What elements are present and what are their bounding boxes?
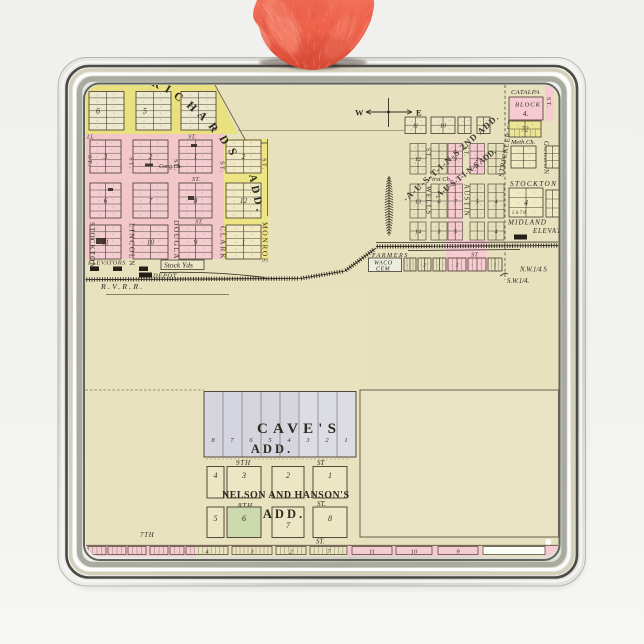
svg-text:ADD.: ADD. [251, 442, 293, 456]
svg-text:12: 12 [415, 156, 422, 163]
svg-text:9TH: 9TH [236, 459, 251, 467]
svg-text:ST.: ST. [86, 155, 93, 167]
svg-text:ELEVATORS: ELEVATORS [87, 260, 126, 267]
svg-text:S.W.1/4.: S.W.1/4. [507, 278, 530, 285]
svg-text:MONROE: MONROE [261, 222, 270, 264]
svg-text:12: 12 [240, 196, 248, 205]
svg-text:AUSTIN: AUSTIN [463, 184, 471, 217]
svg-text:7: 7 [149, 196, 153, 205]
svg-text:E: E [416, 108, 422, 118]
svg-text:CLARK: CLARK [219, 226, 228, 260]
svg-text:7TH: 7TH [140, 532, 155, 539]
svg-text:ST.: ST. [261, 158, 268, 170]
svg-text:ELEVAT: ELEVAT [532, 228, 562, 235]
svg-text:W: W [355, 108, 364, 118]
svg-text:CATALPA: CATALPA [511, 89, 540, 96]
svg-text:ST.: ST. [316, 539, 325, 546]
svg-text:6: 6 [242, 514, 246, 523]
svg-text:3: 3 [103, 152, 108, 161]
svg-text:2: 2 [149, 152, 153, 161]
svg-text:LL: LL [86, 135, 94, 141]
svg-text:10: 10 [440, 123, 447, 130]
svg-text:BLOCK: BLOCK [515, 102, 541, 109]
svg-text:1: 1 [328, 471, 332, 480]
svg-text:2: 2 [286, 471, 290, 480]
svg-text:5: 5 [214, 514, 218, 523]
svg-text:1: 1 [344, 437, 347, 444]
svg-text:10: 10 [147, 238, 155, 247]
svg-text:Meth.Ch.: Meth.Ch. [510, 139, 536, 146]
svg-text:8: 8 [328, 514, 332, 523]
svg-text:WELLS: WELLS [425, 186, 433, 215]
svg-text:N.W.1/4 S: N.W.1/4 S [519, 267, 547, 274]
svg-text:ST.: ST. [192, 176, 200, 183]
svg-text:4: 4 [214, 471, 218, 480]
svg-text:ST.: ST. [195, 219, 203, 226]
svg-text:STOCKTON: STOCKTON [510, 180, 557, 188]
svg-text:ST.: ST. [188, 134, 196, 141]
svg-text:5 6 7 8: 5 6 7 8 [512, 211, 526, 216]
svg-text:14: 14 [415, 228, 422, 235]
svg-text:11: 11 [412, 123, 418, 130]
svg-text:MIDLAND: MIDLAND [507, 219, 547, 227]
svg-text:1: 1 [194, 152, 198, 161]
svg-text:13: 13 [415, 198, 422, 205]
svg-text:ST.: ST. [172, 159, 179, 171]
svg-text:2: 2 [242, 152, 246, 161]
svg-text:Stock Yds: Stock Yds [164, 261, 193, 270]
svg-text:ST.: ST. [545, 97, 551, 109]
svg-text:ST.: ST. [128, 157, 135, 169]
svg-text:ST: ST [471, 252, 478, 259]
svg-text:LINCOLN: LINCOLN [128, 223, 137, 267]
svg-text:ADD.: ADD. [263, 507, 305, 521]
svg-text:1: 1 [242, 238, 246, 247]
svg-text:R.V.R.R.: R.V.R.R. [100, 282, 144, 291]
svg-text:ST.: ST. [219, 161, 226, 173]
svg-text:10: 10 [411, 549, 418, 556]
svg-text:4: 4 [524, 198, 528, 207]
svg-text:ST: ST [317, 459, 326, 467]
svg-text:CEM: CEM [376, 267, 391, 273]
svg-text:CAVE'S: CAVE'S [257, 421, 341, 437]
svg-text:4.: 4. [523, 110, 529, 118]
svg-text:5: 5 [143, 107, 147, 116]
svg-text:ST.: ST. [425, 148, 431, 160]
svg-text:6: 6 [104, 196, 108, 205]
svg-text:72: 72 [522, 125, 530, 133]
svg-text:9: 9 [194, 238, 198, 247]
svg-text:DOUGLAS: DOUGLAS [172, 220, 181, 266]
svg-text:3: 3 [241, 471, 246, 480]
svg-text:NELSON AND HANSON'S: NELSON AND HANSON'S [222, 490, 350, 501]
svg-text:11: 11 [369, 549, 375, 556]
svg-text:6: 6 [96, 107, 100, 116]
svg-text:8: 8 [194, 196, 198, 205]
